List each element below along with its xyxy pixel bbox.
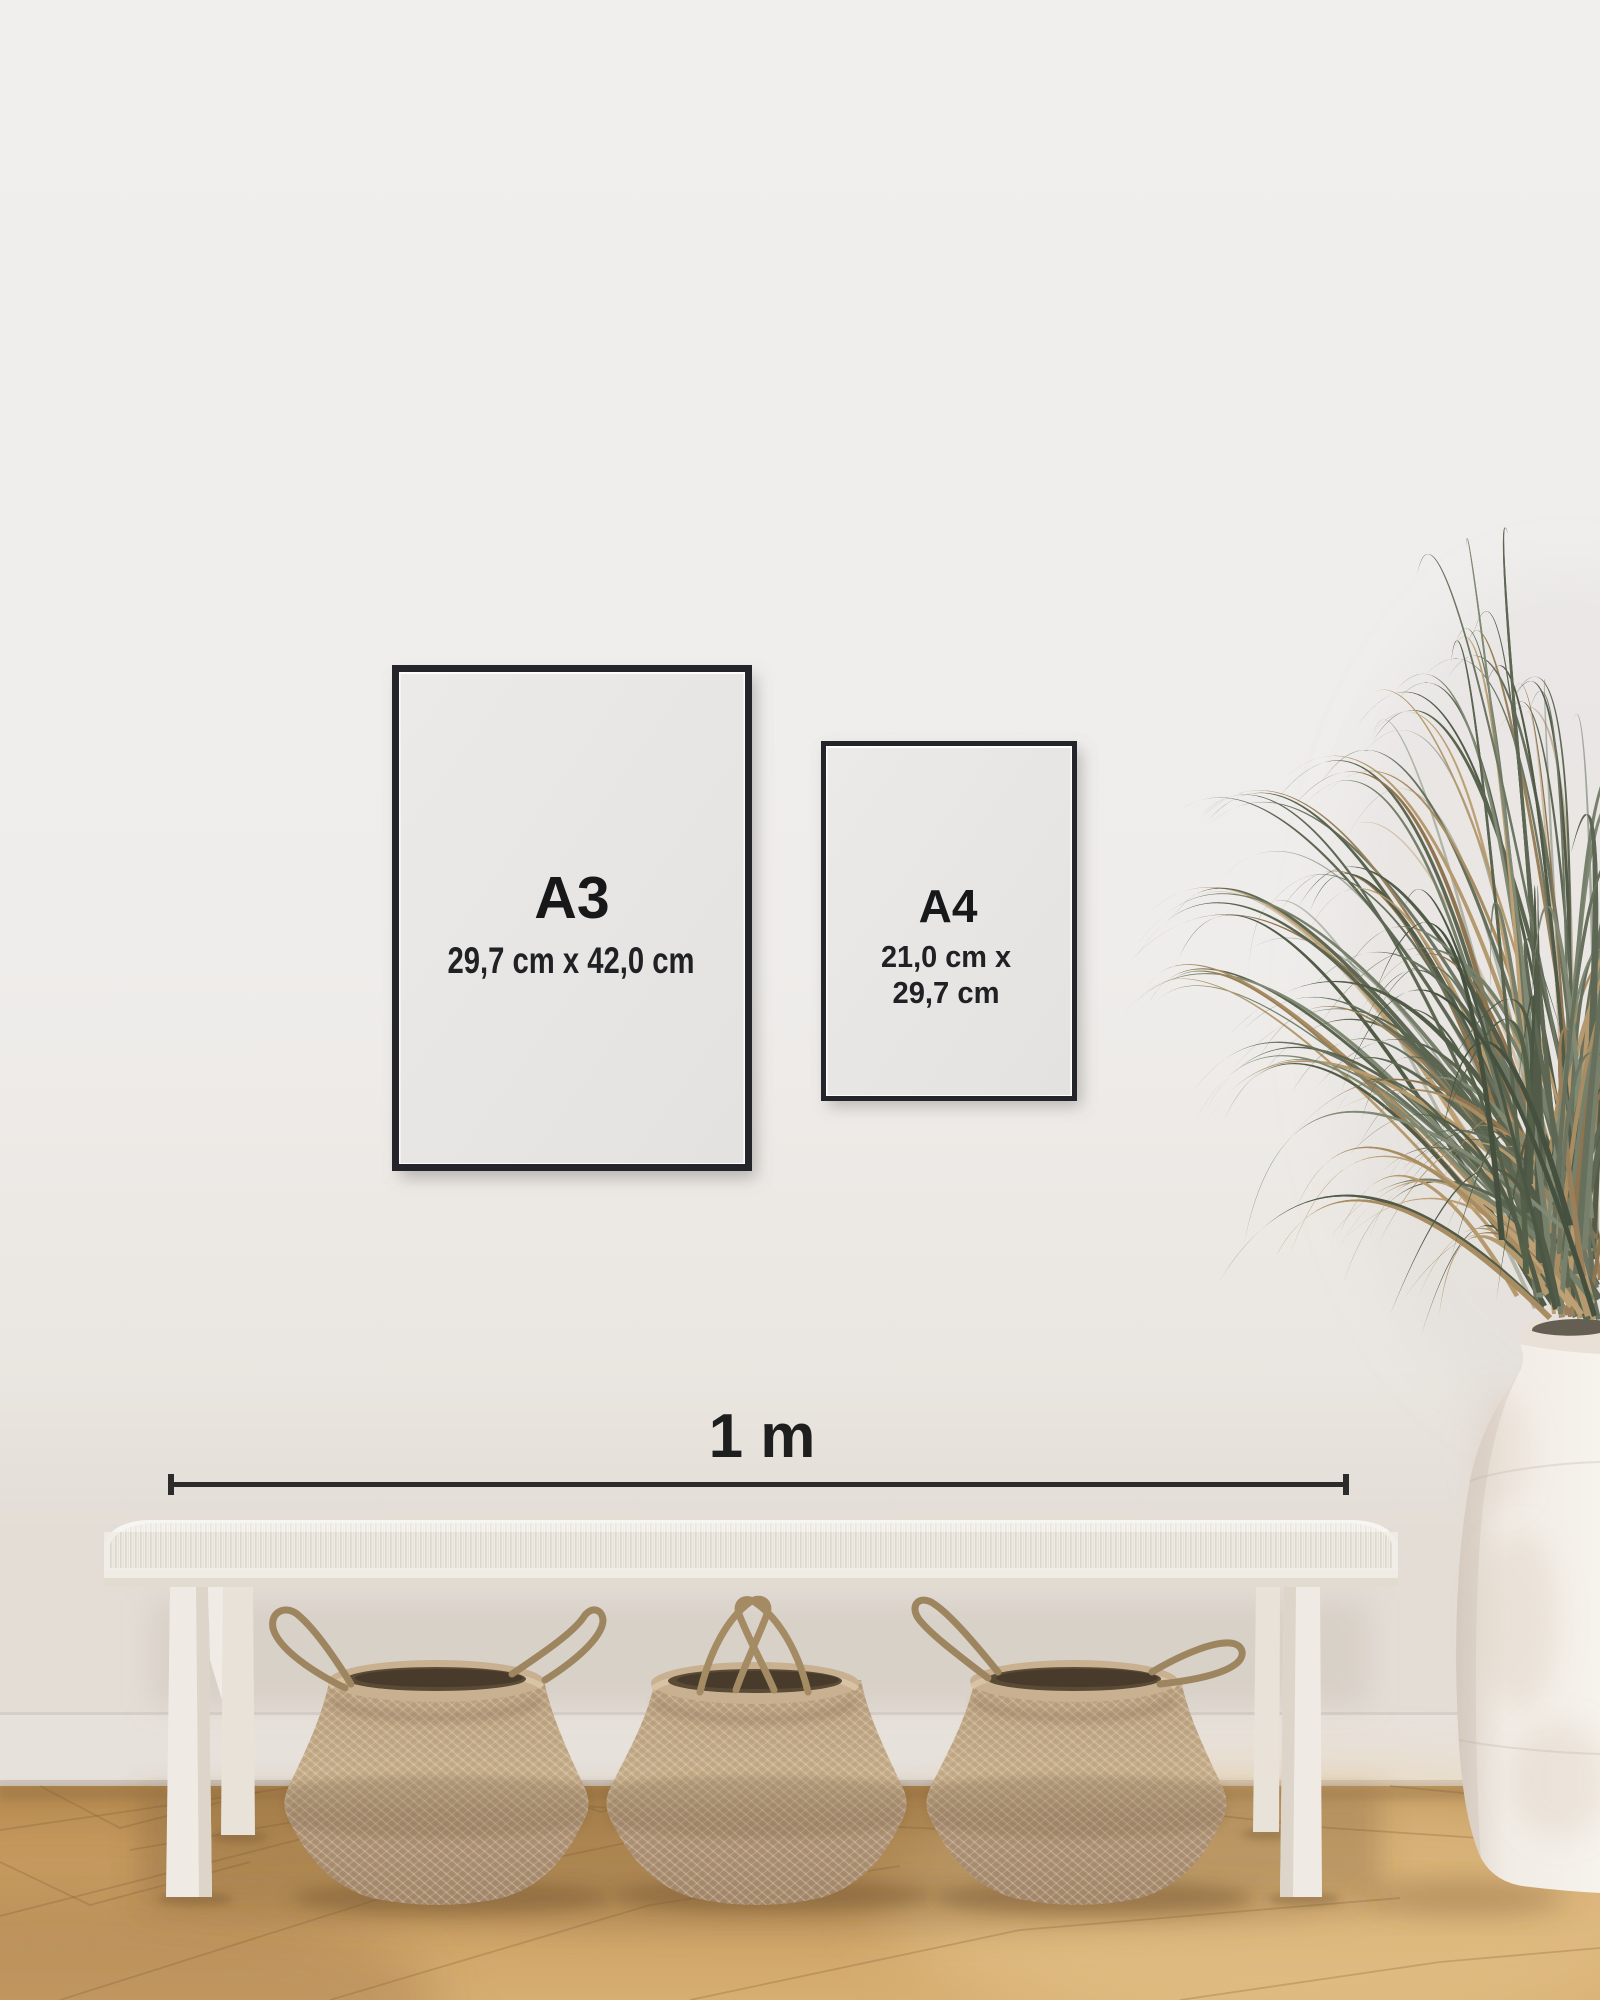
svg-text:29,7 cm: 29,7 cm	[893, 975, 1000, 1010]
svg-text:A4: A4	[919, 880, 978, 932]
svg-text:21,0 cm x: 21,0 cm x	[881, 939, 1012, 974]
svg-text:1 m: 1 m	[709, 1402, 816, 1471]
svg-text:29,7 cm x 42,0 cm: 29,7 cm x 42,0 cm	[448, 940, 695, 981]
svg-text:A3: A3	[534, 865, 609, 931]
